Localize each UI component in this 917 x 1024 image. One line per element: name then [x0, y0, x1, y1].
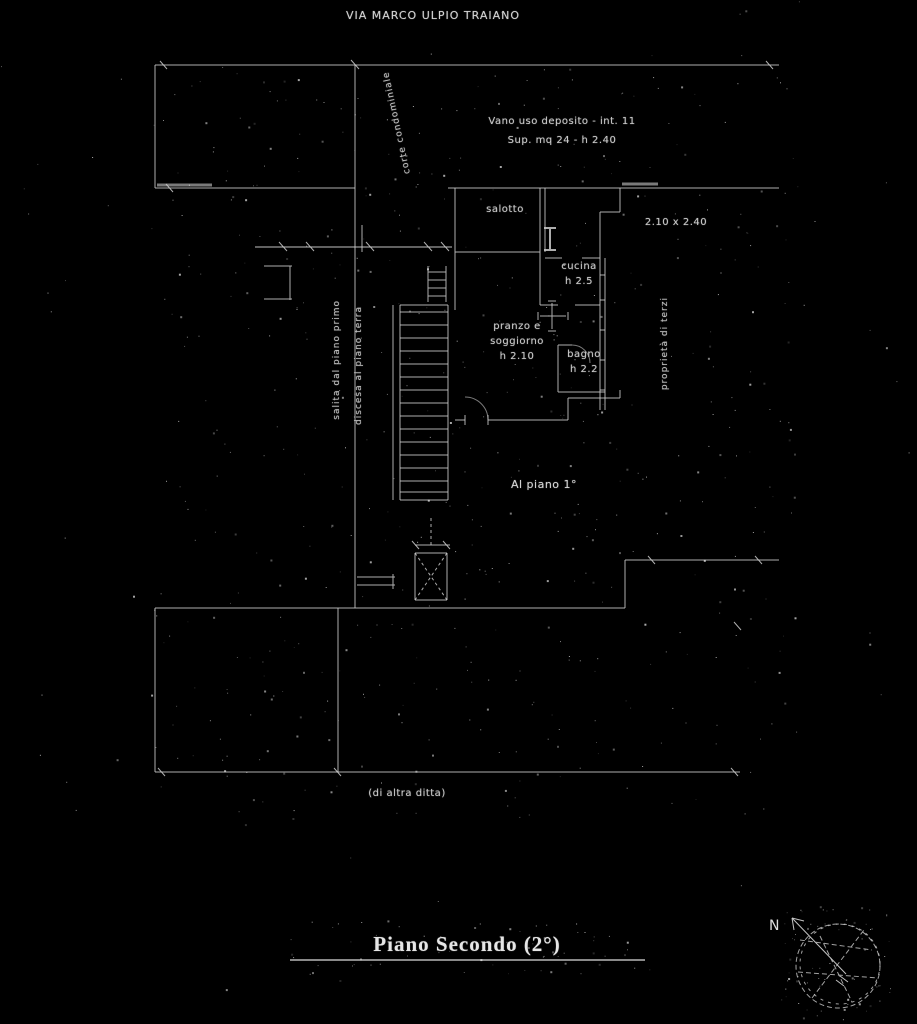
- north-label: N: [769, 918, 779, 934]
- unit-note-label: Vano uso deposito - int. 11Sup. mq 24 - …: [452, 112, 672, 150]
- room-label-cucina: cucina h 2.5: [543, 259, 615, 289]
- room-label-salotto: salotto: [462, 202, 548, 217]
- unit-note-line2: Sup. mq 24 - h 2.40: [508, 135, 617, 146]
- neighbor-property-annotation: proprietà di terzi: [660, 297, 670, 390]
- level-reference-label: Al piano 1°: [490, 477, 598, 494]
- stair-annotation-down: discesa al piano terra: [354, 306, 364, 425]
- drawing-title: Piano Secondo (2°): [278, 929, 656, 961]
- stair-annotation-up: salita dal piano primo: [332, 300, 342, 420]
- unit-note-line1: Vano uso deposito - int. 11: [488, 116, 635, 127]
- blueprint-page: VIA MARCO ULPIO TRAIANO Vano uso deposit…: [0, 0, 917, 1024]
- street-name-label: VIA MARCO ULPIO TRAIANO: [338, 8, 528, 25]
- parcel-note-label: (di altra ditta): [342, 786, 472, 801]
- room-dimension-label: 2.10 x 2.40: [610, 215, 742, 230]
- texture-noise: [0, 0, 917, 1024]
- room-label-bagno: bagno h 2.2: [554, 347, 614, 377]
